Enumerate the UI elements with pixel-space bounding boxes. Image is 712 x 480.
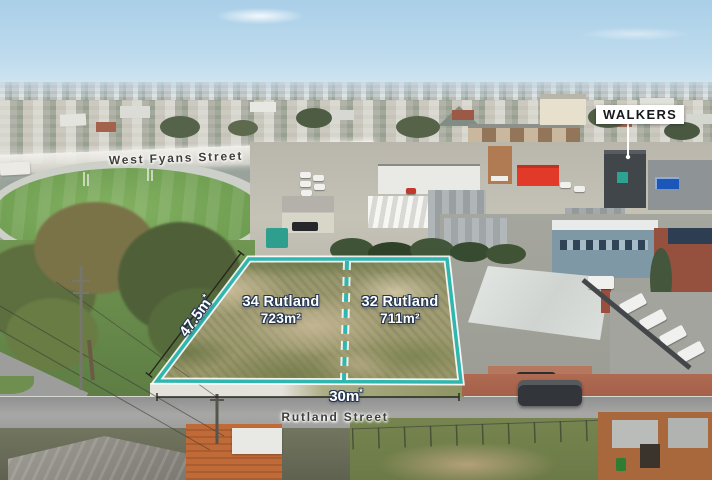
lot-32-name: 32 Rutland xyxy=(338,294,462,311)
lot-32-label: 32 Rutland 711m² xyxy=(338,294,462,326)
agency-sign: WALKERS xyxy=(596,105,684,124)
dimension-tick xyxy=(146,373,152,378)
lot-32-area: 711m² xyxy=(338,311,462,327)
overlay-graphics xyxy=(0,0,712,480)
agency-pointer-dot xyxy=(626,155,630,159)
tree-trunk xyxy=(89,340,93,380)
dimension-bottom-value: 30m xyxy=(329,388,359,405)
paling-fence xyxy=(583,280,690,368)
lot-34-name: 34 Rutland xyxy=(219,294,343,311)
dimension-bottom-label: 30m* xyxy=(316,387,376,405)
aerial-photo: West Fyans Street 34 Rutland 723m² 32 Ru… xyxy=(0,0,712,480)
lot-34-label: 34 Rutland 723m² xyxy=(219,294,343,326)
lot-34-area: 723m² xyxy=(219,311,343,327)
dimension-bottom-mark: * xyxy=(359,387,363,397)
street-label-rutland: Rutland Street xyxy=(265,410,405,424)
dimension-tick xyxy=(238,251,244,256)
